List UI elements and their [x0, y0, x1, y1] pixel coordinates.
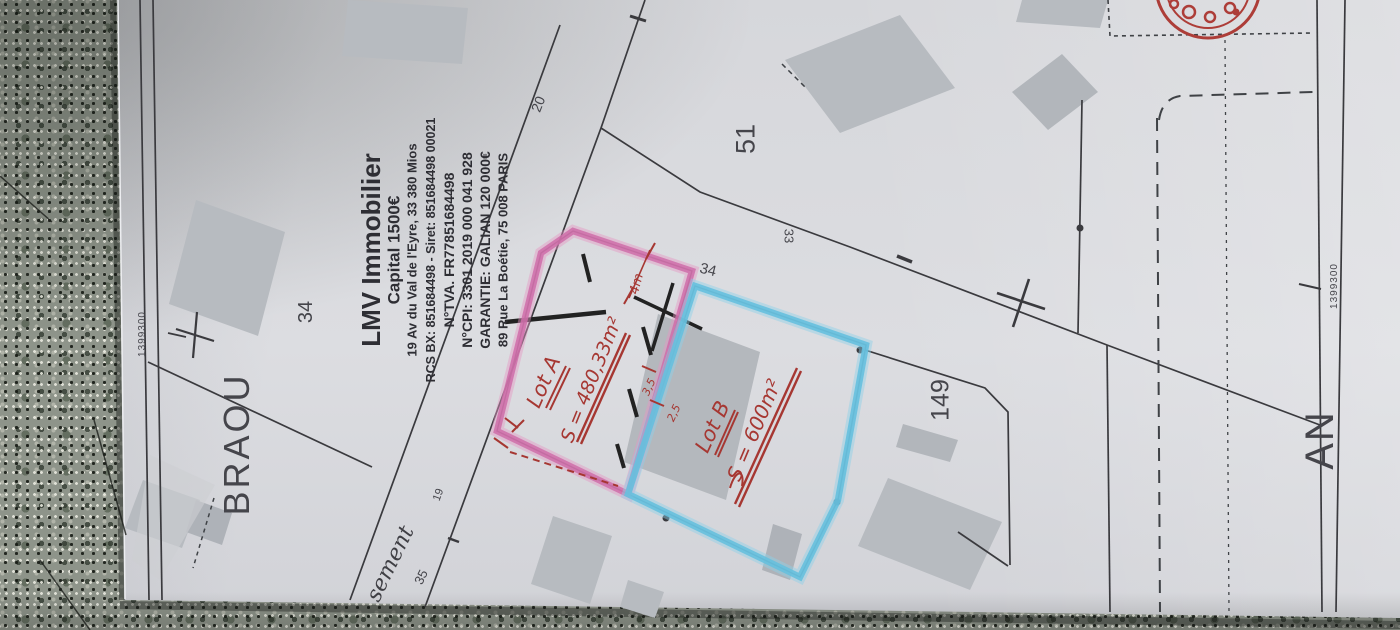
stamp-address: 19 Av du Val de l'Eyre, 33 380 Mios [406, 143, 419, 356]
stamp-capital: Capital 1500€ [386, 196, 403, 305]
photo-of-cadastral-plan: BRAOU 34 34 51 33 149 20 35 19 sement 13… [0, 0, 1400, 630]
stamp-company-name: LMV Immobilier [358, 153, 384, 347]
stamp-cpi: N°CPI: 3301 2019 000 041 928 [460, 152, 474, 348]
parcel-boundaries [148, 0, 1320, 612]
stamp-tva: N°TVA. FR77851684498 [442, 173, 456, 328]
parcel-number-34: 34 [296, 301, 316, 323]
section-label-an: AN [1300, 410, 1340, 470]
road-number-33: 33 [783, 229, 796, 243]
red-seal-stamp-icon [1156, 0, 1260, 38]
stamp-garantie: GARANTIE: GALIAN 120 000€ [478, 151, 492, 349]
grid-coordinate-left: 1399300 [138, 311, 148, 357]
granite-joint-lines [0, 176, 126, 630]
stamp-rcs-siret: RCS BX: 851684498 - Siret: 851684498 000… [425, 118, 438, 383]
plan-linework [0, 0, 1400, 630]
parcel-number-149: 149 [929, 379, 954, 421]
parcel-number-51: 51 [733, 124, 760, 154]
plan-area-name: BRAOU [219, 372, 255, 515]
grid-coordinate-right: 1399300 [1330, 263, 1340, 309]
stamp-paris-address: 89 Rue La Boétie, 75 008 PARIS [497, 153, 510, 347]
building-footprints [125, 0, 1108, 618]
parcel-number-34b: 34 [698, 261, 718, 280]
